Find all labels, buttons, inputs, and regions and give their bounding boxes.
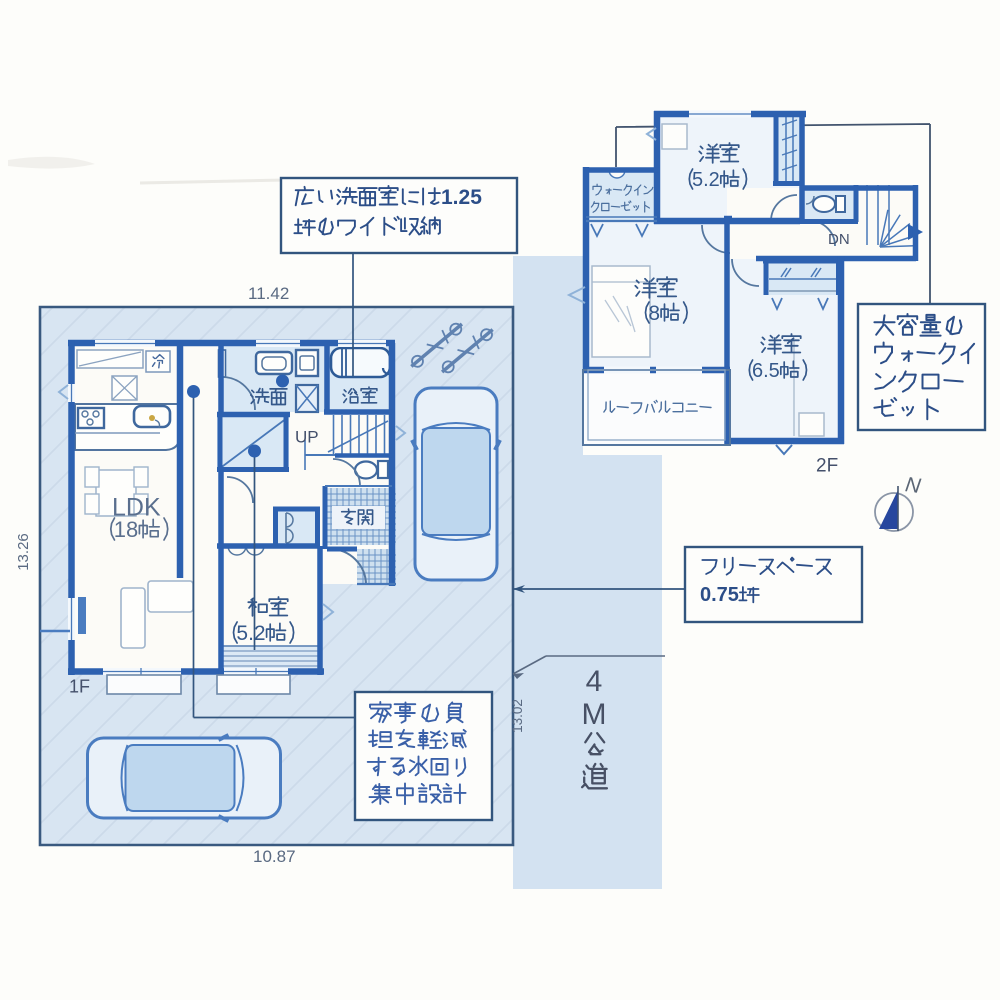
svg-text:13.02: 13.02 (510, 699, 525, 733)
svg-text:2F: 2F (816, 455, 838, 476)
svg-text:6.5: 6.5 (752, 360, 780, 382)
svg-text:13.26: 13.26 (15, 533, 32, 571)
svg-text:UP: UP (295, 428, 319, 447)
svg-text:1.25: 1.25 (441, 186, 482, 209)
svg-text:DN: DN (828, 231, 850, 248)
svg-text:1F: 1F (69, 677, 90, 697)
svg-text:0.75: 0.75 (700, 584, 739, 606)
svg-text:10.87: 10.87 (253, 847, 296, 866)
svg-text:M: M (582, 698, 607, 731)
svg-text:5.2: 5.2 (236, 622, 265, 645)
svg-text:18: 18 (114, 517, 138, 542)
svg-text:8: 8 (648, 302, 660, 325)
svg-text:5.2: 5.2 (692, 169, 720, 191)
svg-text:11.42: 11.42 (248, 284, 289, 303)
svg-text:4: 4 (586, 665, 603, 698)
